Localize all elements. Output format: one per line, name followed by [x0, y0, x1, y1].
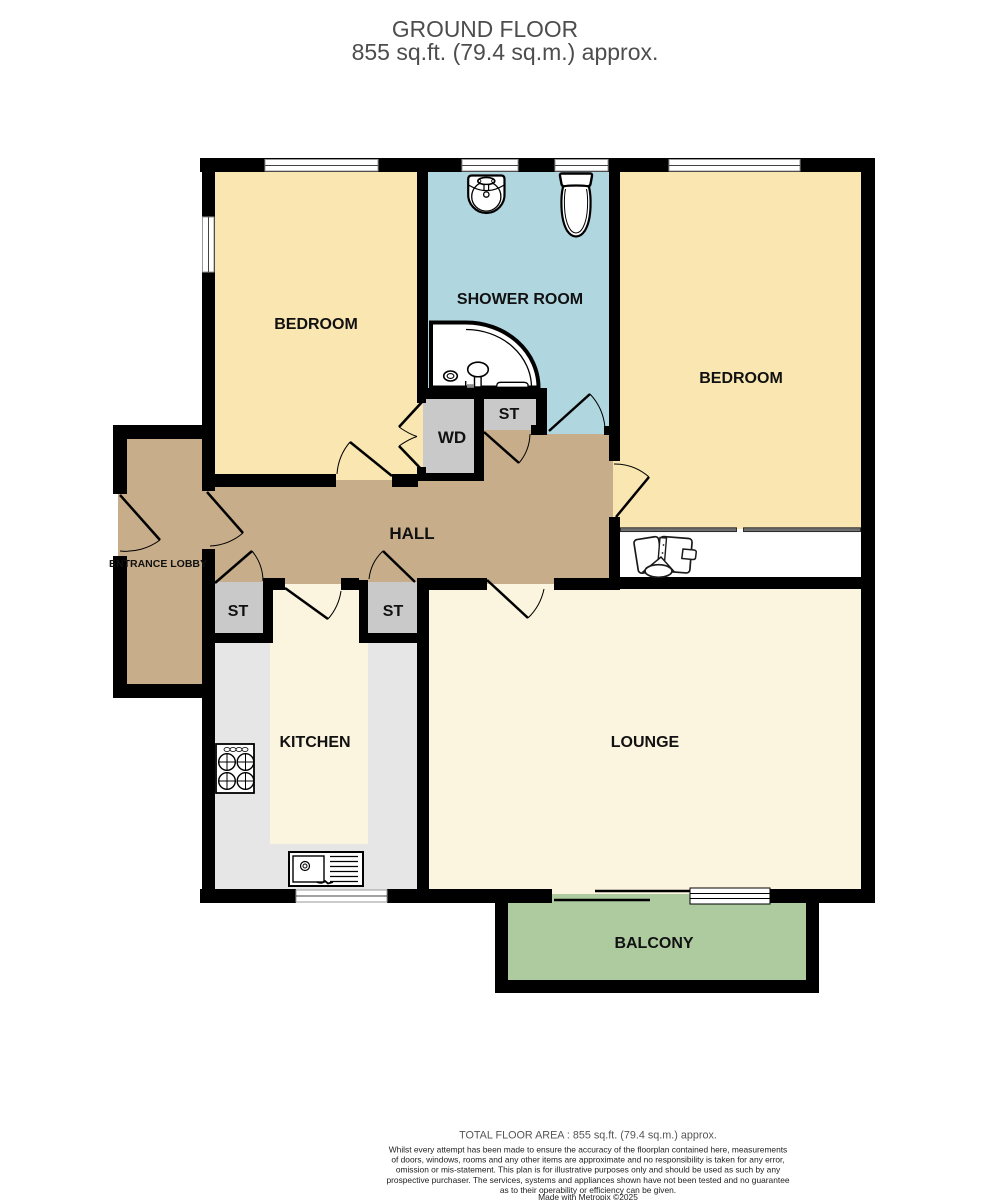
svg-text:Made with Metropix ©2025: Made with Metropix ©2025: [538, 1192, 638, 1200]
svg-text:SHOWER ROOM: SHOWER ROOM: [457, 291, 583, 308]
svg-text:of doors, windows, rooms and a: of doors, windows, rooms and any other i…: [391, 1155, 784, 1165]
svg-text:BALCONY: BALCONY: [614, 935, 693, 952]
svg-text:omission or mis-statement. Thi: omission or mis-statement. This plan is …: [396, 1165, 781, 1175]
svg-text:855 sq.ft. (79.4 sq.m.) approx: 855 sq.ft. (79.4 sq.m.) approx.: [352, 39, 659, 65]
svg-text:Whilst every attempt has been: Whilst every attempt has been made to en…: [389, 1145, 788, 1155]
svg-text:TOTAL FLOOR AREA : 855 sq.ft.: TOTAL FLOOR AREA : 855 sq.ft. (79.4 sq.m…: [459, 1130, 717, 1142]
svg-text:BEDROOM: BEDROOM: [274, 316, 358, 333]
svg-text:KITCHEN: KITCHEN: [279, 734, 350, 751]
svg-text:WD: WD: [438, 428, 466, 447]
svg-text:LOUNGE: LOUNGE: [611, 734, 680, 751]
svg-text:ST: ST: [383, 603, 404, 620]
svg-text:prospective purchaser. The ser: prospective purchaser. The services, sys…: [386, 1175, 789, 1185]
svg-text:BEDROOM: BEDROOM: [699, 370, 783, 387]
svg-text:ST: ST: [228, 603, 249, 620]
svg-text:ST: ST: [499, 406, 520, 423]
svg-text:ENTRANCE LOBBY: ENTRANCE LOBBY: [109, 558, 207, 570]
svg-text:HALL: HALL: [389, 524, 434, 543]
